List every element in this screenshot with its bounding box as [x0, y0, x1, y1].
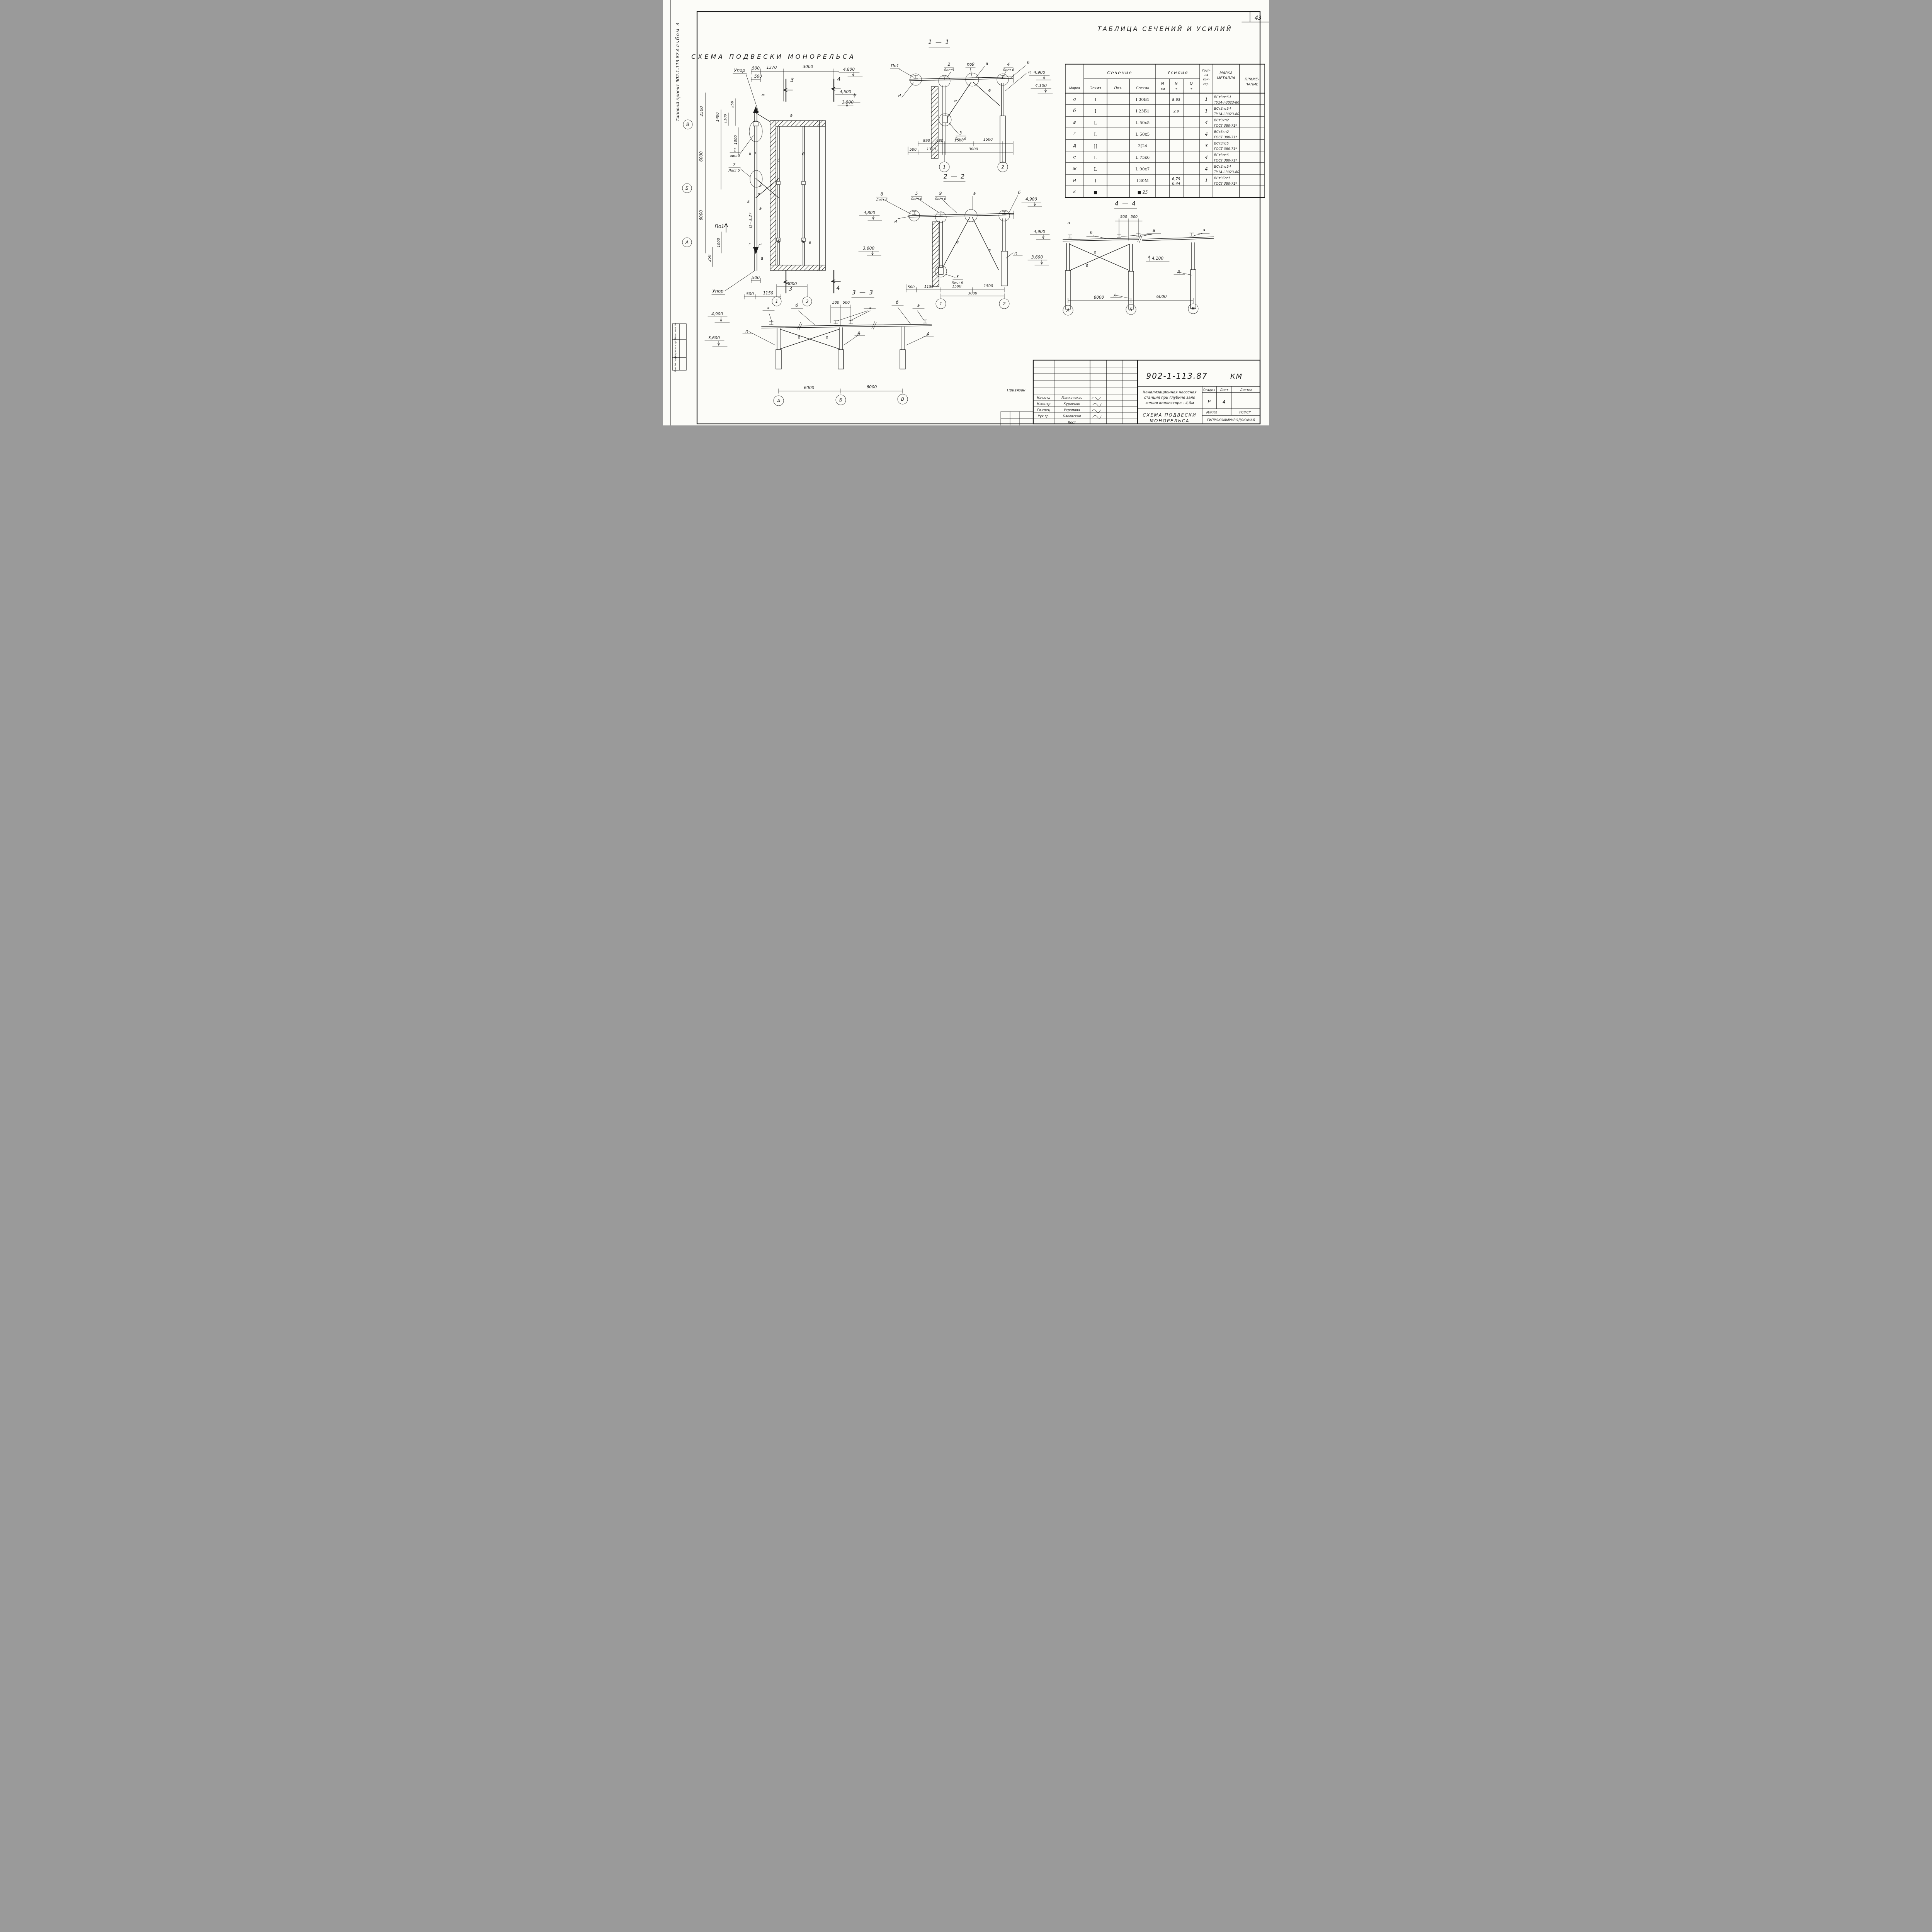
label-a: а	[767, 306, 769, 310]
dim: 2500	[699, 106, 704, 116]
detail-ref: 5	[915, 191, 918, 196]
sheets-label: Листов	[1240, 388, 1252, 392]
col-note: ЧАНИЕ	[1245, 82, 1258, 87]
row-std: ГОСТ 380-71*	[1214, 124, 1237, 128]
col-n-unit: т	[1175, 87, 1178, 91]
col-n: N	[1175, 82, 1177, 86]
label-d: д	[1014, 251, 1017, 255]
label-a: а	[759, 184, 762, 188]
dim: 500	[746, 292, 754, 296]
label-b: б	[777, 158, 780, 163]
label-d: д	[857, 330, 860, 335]
detail-ref: Лист 6	[876, 198, 888, 202]
axis-V: В	[1192, 306, 1195, 311]
sketch-icon: I	[1095, 108, 1097, 114]
row-sostav: I 23Б1	[1136, 109, 1149, 114]
ref-po9: по9	[967, 62, 975, 67]
col-marka: Марка	[1069, 87, 1080, 90]
dim: 500	[843, 301, 850, 305]
section-title: 3 — 3	[852, 289, 874, 296]
person-role: Гл.спец	[1037, 408, 1050, 412]
person-role: Нач.отд	[1037, 396, 1050, 400]
dim: 480	[936, 139, 943, 143]
side-stamp-vzam: Взам. инв. №	[674, 323, 677, 340]
label-b: б	[802, 240, 804, 244]
section-1-1: 1 — 1	[835, 38, 1053, 172]
label-e: е	[956, 240, 959, 245]
label-e: е	[1086, 263, 1088, 268]
col-q: Q	[1190, 82, 1193, 86]
sheet-number: 43	[1255, 15, 1262, 21]
section-mark-4: 4	[837, 77, 841, 83]
detail-ref: Лист 6	[1002, 68, 1014, 72]
col-sostav: Состав	[1136, 86, 1150, 90]
label-d: д	[1027, 70, 1031, 74]
album-label: Альбом 3	[675, 22, 680, 52]
title-block-text: 902-1-113.87 КМ Канализационная насосная…	[1007, 371, 1255, 425]
ref-po1: По1	[891, 64, 899, 68]
label-a: а	[761, 256, 763, 261]
row-grp: 4	[1205, 166, 1207, 172]
project-name: жения коллектора - 4,0м	[1145, 401, 1194, 405]
row-grp: 1	[1205, 97, 1207, 102]
dim: 500	[908, 285, 915, 289]
po1-label: По1	[715, 223, 724, 229]
axis-A: А	[685, 240, 689, 245]
side-stamp-inv: Инв. № подл.	[674, 355, 677, 372]
axis-2: 2	[806, 299, 808, 304]
axis-1: 1	[943, 164, 946, 170]
label-b: б	[1090, 231, 1093, 235]
dim: 6000	[1094, 295, 1104, 300]
person-name: Бяковская	[1063, 415, 1081, 418]
dim: 6000	[699, 151, 704, 162]
elevation: 3,600	[863, 246, 874, 251]
section-3-3: 3 — 3	[705, 289, 934, 406]
col-poz: Поз.	[1114, 86, 1122, 90]
label-i: и	[895, 219, 897, 224]
table-title: ТАБЛИЦА СЕЧЕНИЙ И УСИЛИЙ	[1097, 25, 1232, 32]
label-b: б	[802, 152, 805, 156]
row-grp: 4	[1205, 120, 1207, 125]
sketch-icon: []	[1094, 143, 1097, 149]
detail-ref: 3	[959, 131, 962, 136]
dim: 3000	[968, 291, 977, 296]
row-n: 6,79	[1172, 177, 1180, 181]
dim: 1000	[717, 238, 721, 247]
person-name: Манкачекас	[1061, 396, 1082, 400]
label-b: б	[896, 300, 899, 305]
dim: 250	[730, 101, 735, 108]
label-d: д	[1177, 269, 1180, 274]
row-marka: д	[1073, 143, 1076, 148]
drawing-title: СХЕМА ПОДВЕСКИ	[1143, 412, 1196, 418]
label-g: г	[748, 242, 751, 247]
label-d: д	[745, 329, 748, 333]
row-sostav: I 30Б1	[1136, 97, 1149, 102]
dim: 500	[910, 148, 917, 152]
dim: 500	[832, 301, 839, 305]
col-sechenie: Сечение	[1107, 70, 1132, 75]
dim: 500	[754, 74, 762, 79]
project-label: Типовой проект 902-1-113.87	[675, 52, 680, 121]
detail-ref: Лист 6	[910, 197, 922, 201]
col-note: ПРИМЕ-	[1245, 77, 1259, 82]
dim: 500	[1131, 215, 1138, 219]
axis-1: 1	[939, 301, 942, 306]
row-std: ТУ14-I-3023-80	[1214, 101, 1239, 105]
label-i: и	[749, 151, 752, 156]
row-metal: ВСт3кп2	[1214, 119, 1229, 122]
upor-label: Упор	[734, 68, 745, 73]
sketch-icon: L	[1094, 155, 1097, 160]
dim: 3000	[969, 147, 978, 151]
elevation: 3,600	[708, 336, 720, 340]
row-metal: ВСт3пс6-I	[1214, 95, 1231, 99]
detail-ref: 7	[733, 163, 736, 167]
axis-B: Б	[685, 185, 689, 191]
row-std: ГОСТ 380-71*	[1214, 136, 1237, 139]
label-a: а	[1153, 228, 1155, 233]
col-metal: МЕТАЛЛА	[1217, 76, 1235, 80]
row-grp: 3	[1205, 143, 1207, 148]
axis-B: Б	[1129, 307, 1133, 312]
label-zh: ж	[761, 93, 765, 97]
detail-ref: лист5	[730, 154, 740, 158]
stage-label: Стадия	[1203, 388, 1216, 392]
person-name: Кост	[1068, 421, 1077, 425]
axis-V: В	[901, 396, 904, 402]
label-a: а	[986, 61, 988, 66]
elevation: 4,100	[1152, 256, 1163, 261]
sketch-icon: L	[1094, 131, 1097, 137]
dim: 1000	[734, 135, 738, 145]
drawing-title: МОНОРЕЛЬСА	[1150, 418, 1189, 423]
elevation: 4,900	[1034, 70, 1045, 75]
row-sostav: 2[24	[1138, 144, 1147, 148]
elevation: 4,800	[864, 211, 875, 215]
axis-1: 1	[775, 299, 778, 304]
elevation: 4,900	[711, 312, 723, 316]
dim: 500	[752, 66, 760, 71]
dim: 890	[923, 139, 930, 143]
label-a: а	[759, 206, 762, 211]
detail-ref: 3	[956, 275, 959, 279]
section-title: 1 — 1	[928, 38, 950, 46]
label-e: е	[798, 335, 800, 340]
col-metal: МАРКА	[1219, 71, 1233, 75]
sheet-label: Лист	[1219, 388, 1229, 392]
doc-type: КМ	[1230, 372, 1243, 381]
col-group: Груп-	[1202, 69, 1211, 72]
sketch-icon: L	[1094, 166, 1097, 172]
col-usiliya: Усилия	[1167, 70, 1189, 75]
dim: 1370	[927, 147, 936, 151]
plan-title: СХЕМА ПОДВЕСКИ МОНОРЕЛЬСА	[691, 53, 856, 60]
label-a: а	[869, 306, 871, 310]
dim: 1370	[767, 65, 777, 70]
q-label: Q=3,2т	[748, 212, 753, 228]
row-grp: 4	[1205, 131, 1207, 137]
person-name: Укропова	[1064, 408, 1080, 412]
row-sostav: ■ 25	[1138, 190, 1148, 195]
dim: 1500	[983, 138, 993, 142]
project-name: Канализационная насосная	[1143, 390, 1196, 395]
row-n: 8,63	[1172, 98, 1180, 102]
detail-ref: 8	[881, 192, 883, 197]
label-k: к	[754, 151, 757, 155]
row-grp: 1	[1205, 108, 1207, 114]
row-metal: ВСт3пс6	[1214, 142, 1229, 146]
label-b: б	[796, 303, 798, 308]
detail-ref: 1	[734, 148, 736, 153]
label-e: е	[826, 335, 828, 340]
cad-canvas: 43 Альбом 3 Типовой проект 902-1-113.87 …	[663, 0, 1269, 425]
label-e: е	[989, 248, 991, 252]
row-marka: к	[1073, 189, 1076, 194]
dim: 3000	[803, 65, 813, 69]
row-sostav: L 90x7	[1136, 167, 1150, 172]
row-n: 0,44	[1172, 182, 1180, 186]
row-marka: и	[1073, 177, 1076, 183]
label-v: в	[758, 192, 760, 196]
dim: 1100	[723, 114, 728, 123]
row-marka: в	[1073, 119, 1076, 125]
sketch-icon: I	[1095, 97, 1097, 102]
detail-ref: Лист 5	[728, 169, 740, 173]
row-grp: 4	[1205, 155, 1207, 160]
col-group: кон-	[1203, 78, 1210, 81]
row-marka: б	[1073, 108, 1076, 113]
org-ministry: МЖКХ	[1206, 411, 1218, 415]
person-role: Н.контр	[1037, 402, 1050, 406]
org-republic: РСФСР	[1239, 411, 1251, 415]
dim: 1500	[952, 284, 961, 289]
axis-B: Б	[839, 397, 842, 403]
sketch-icon: L	[1094, 120, 1097, 126]
section-mark-4: 4	[837, 285, 840, 291]
drawing-sheet: 43 Альбом 3 Типовой проект 902-1-113.87 …	[663, 0, 1269, 425]
section-mark-3: 3	[789, 286, 793, 292]
axis-V: В	[686, 122, 689, 127]
row-n: 2,9	[1173, 109, 1179, 114]
section-2-2: 2 — 2	[859, 173, 1042, 309]
row-marka: е	[1073, 154, 1076, 160]
table-header: Марка Сечение Усилия Эскиз Поз. Состав М…	[1069, 69, 1260, 91]
row-grp: 1	[1205, 178, 1207, 183]
row-std: ГОСТ 380-71*	[1214, 159, 1237, 163]
axis-2: 2	[1001, 164, 1004, 170]
col-eskiz: Эскиз	[1090, 86, 1101, 90]
stage-value: Р	[1207, 399, 1211, 405]
axis-A: А	[777, 398, 780, 403]
label-e: е	[1094, 250, 1096, 255]
dim: 6000	[804, 386, 815, 390]
row-sostav: L 75x6	[1136, 155, 1150, 160]
elevation: 4,500	[840, 90, 851, 94]
sketch-icon: ■	[1094, 190, 1097, 195]
doc-number: 902-1-113.87	[1146, 371, 1207, 381]
section-4-4-labels: 4,900 3,600 4,100 500 500 б а а а е е д …	[1031, 215, 1205, 313]
row-metal: ВСт3пс6-I	[1214, 107, 1231, 111]
label-b: б	[1027, 61, 1030, 65]
detail-ref: Лист 6	[934, 197, 946, 201]
detail-ref: Лист5	[944, 68, 954, 72]
col-m-unit: тм	[1160, 87, 1165, 91]
label-b: б	[1018, 190, 1021, 195]
org-name: ГИПРОКОММУНВОДОКАНАЛ	[1207, 418, 1255, 422]
row-std: ГОСТ 380-71*	[1214, 147, 1237, 151]
dim: 1400	[716, 112, 720, 122]
upor-label: Упор	[713, 288, 724, 294]
row-metal: ВСт3Гпс5	[1214, 177, 1231, 180]
dim: 6000	[867, 385, 877, 389]
col-group: стр.	[1203, 82, 1209, 86]
elevation: 4,800	[843, 67, 855, 72]
col-group: па	[1204, 73, 1208, 77]
dim: 1500	[954, 138, 964, 143]
section-mark-3: 3	[791, 77, 794, 83]
col-q-unit: т	[1190, 87, 1193, 91]
elevation: 4,900	[1026, 197, 1037, 202]
dim: 1150	[763, 291, 774, 296]
row-sostav: I 30М	[1136, 179, 1149, 183]
label-a: а	[1203, 228, 1205, 232]
row-std: ТУ14-I-3023-80	[1214, 170, 1239, 174]
row-std: ТУ14-I-3023-80	[1214, 112, 1239, 116]
label-a: а	[917, 303, 920, 308]
label-g2: г'	[759, 243, 762, 248]
dim: 3000	[787, 282, 797, 286]
row-metal: ВСт3пс6-I	[1214, 165, 1231, 169]
col-m: М	[1161, 82, 1164, 86]
detail-ref: 2	[948, 62, 951, 67]
dim: 6000	[1156, 294, 1167, 299]
label-a: а	[973, 191, 976, 196]
elevation: 4,900	[1034, 230, 1045, 234]
label-g: г	[753, 134, 755, 138]
label-d: д	[926, 331, 929, 336]
row-marka: г	[1073, 131, 1076, 136]
project-name: станция при глубине зало	[1144, 396, 1195, 400]
row-marka: а	[1073, 96, 1076, 102]
row-sostav: L 50x5	[1136, 121, 1150, 125]
detail-ref: 9	[939, 191, 942, 196]
row-metal: ВСт3кп2	[1214, 130, 1229, 134]
dim: 250	[707, 255, 712, 262]
sheet-value: 4	[1223, 399, 1226, 405]
row-marka: ж	[1072, 166, 1077, 171]
label-a: а	[790, 113, 793, 118]
section-2-2-labels: 8 Лист 6 5 Лист 6 9 Лист 6 а б и д е е 3…	[863, 190, 1037, 306]
label-b: б	[777, 239, 780, 244]
section-3-3-labels: 4,900 3,600 а б 500 500 а б а д д д е е …	[708, 300, 930, 403]
section-title: 4 — 4	[1115, 200, 1137, 207]
axis-2: 2	[1003, 301, 1005, 306]
section-title: 2 — 2	[944, 173, 966, 180]
elevation: 3,600	[1031, 255, 1043, 260]
label-e: е	[988, 88, 991, 93]
detail-ref: 4	[1007, 62, 1010, 67]
stamp-note: Привязан	[1007, 388, 1026, 393]
dim: 500	[752, 276, 760, 280]
dim: 1500	[984, 284, 993, 288]
label-d: д	[1113, 293, 1116, 297]
label-e: е	[954, 99, 957, 103]
dim: 500	[1120, 215, 1127, 219]
dim: 6000	[699, 210, 704, 220]
row-std: ГОСТ 380-71*	[1214, 182, 1237, 186]
row-sostav: L 50x5	[1136, 132, 1150, 137]
elevation: 3,500	[842, 100, 854, 105]
label-e: е	[809, 240, 811, 245]
row-metal: ВСт3пс6	[1214, 153, 1229, 157]
dim: 1150	[924, 285, 934, 289]
elevation: 4,100	[1035, 83, 1047, 88]
label-a: а	[1068, 221, 1070, 225]
label-v: в	[747, 199, 750, 204]
sketch-icon: I	[1095, 178, 1097, 184]
person-role: Рук.гр.	[1038, 415, 1050, 418]
label-i: и	[898, 93, 901, 98]
axis-A: А	[1066, 308, 1070, 313]
person-name: Курленко	[1063, 402, 1080, 406]
